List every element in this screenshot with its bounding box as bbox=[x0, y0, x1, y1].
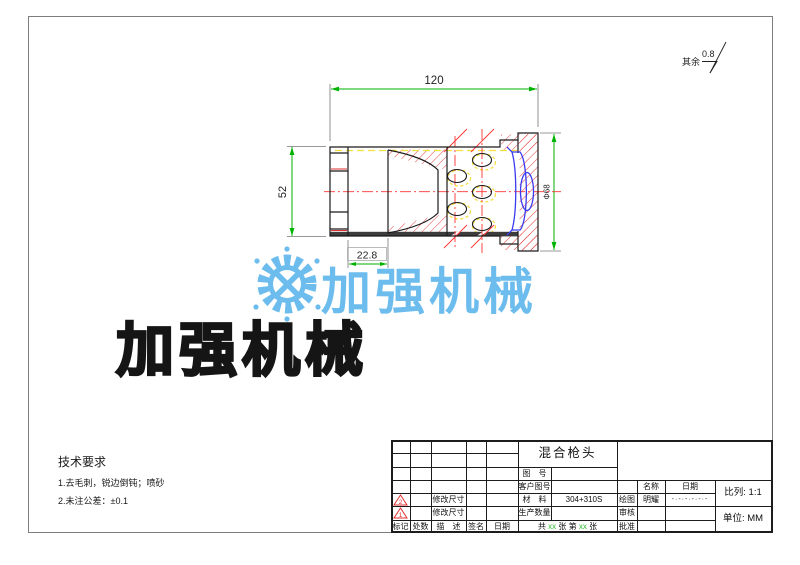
tech-req-title: 技术要求 bbox=[58, 453, 165, 470]
dim-length: 120 bbox=[424, 75, 443, 87]
svg-text:2: 2 bbox=[399, 499, 403, 506]
tech-req-line-1: 1.去毛刺，锐边倒钝；喷砂 bbox=[58, 476, 165, 489]
draw-label: 绘图 bbox=[617, 493, 637, 506]
technical-requirements: 技术要求 1.去毛刺，锐边倒钝；喷砂 2.未注公差：±0.1 bbox=[58, 453, 165, 512]
titleblock-grid-line bbox=[391, 467, 617, 468]
revision-desc: 修改尺寸 bbox=[431, 506, 466, 519]
name-header: 名称 bbox=[637, 480, 665, 493]
sheet-count-row: 共 xx 张 第 xx 张 bbox=[518, 520, 617, 533]
check-label: 审核 bbox=[617, 506, 637, 519]
sheet-num: xx bbox=[579, 522, 587, 531]
revision-triangle-icon: 1 bbox=[393, 507, 408, 519]
drawing-sheet: 120 52 22.8 Φ68 bbox=[0, 0, 800, 565]
inner-red-lines bbox=[331, 169, 347, 231]
surface-note-value: 0.8 bbox=[702, 49, 715, 59]
unit-cell: 单位: MM bbox=[715, 506, 771, 533]
brand-watermark-black: 加强机械 bbox=[116, 303, 368, 387]
unit-label: 单位: bbox=[723, 513, 745, 524]
tech-req-line-2: 2.未注公差：±0.1 bbox=[58, 494, 165, 507]
date-header: 日期 bbox=[665, 480, 715, 493]
dim-height: 52 bbox=[277, 186, 289, 198]
material-value: 304+310S bbox=[551, 493, 617, 506]
part-name: 混合枪头 bbox=[518, 440, 617, 467]
svg-text:1: 1 bbox=[399, 512, 403, 519]
surface-roughness-note: 其余 0.8 bbox=[682, 42, 726, 73]
revision-desc: 修改尺寸 bbox=[431, 493, 466, 506]
header-mark: 标记 bbox=[391, 520, 410, 533]
header-count: 处数 bbox=[410, 520, 431, 533]
draw-date: -·-·-·-·-·- bbox=[665, 493, 715, 506]
unit-value: MM bbox=[747, 513, 763, 524]
surface-note-label: 其余 bbox=[682, 56, 700, 67]
revision-triangle-icon: 2 bbox=[393, 494, 408, 506]
scale-cell: 比列: 1:1 bbox=[715, 480, 771, 507]
revision-mark-2: 2 bbox=[391, 493, 410, 506]
scale-label: 比列: bbox=[724, 487, 746, 498]
revision-mark-1: 1 bbox=[391, 506, 410, 519]
scale-value: 1:1 bbox=[749, 487, 762, 498]
titleblock-grid-line bbox=[771, 440, 773, 533]
sheet-count: xx bbox=[548, 522, 556, 531]
title-block: 混合枪头 图 号 客户图号 材 料 304+310S 生产数量 共 xx 张 第… bbox=[391, 440, 773, 533]
material-label: 材 料 bbox=[518, 493, 551, 506]
sheet-mid: 张 第 bbox=[558, 522, 576, 531]
header-sign: 签名 bbox=[466, 520, 486, 533]
draw-name: 明耀 bbox=[637, 493, 665, 506]
header-date: 日期 bbox=[486, 520, 518, 533]
sheet-suffix: 张 bbox=[589, 522, 597, 531]
customer-no-label: 客户图号 bbox=[518, 480, 551, 493]
approve-label: 批准 bbox=[617, 520, 637, 533]
header-desc: 描 述 bbox=[431, 520, 466, 533]
quantity-label: 生产数量 bbox=[518, 506, 551, 519]
sheet-prefix: 共 bbox=[538, 522, 546, 531]
drawing-no-label: 图 号 bbox=[518, 467, 551, 480]
